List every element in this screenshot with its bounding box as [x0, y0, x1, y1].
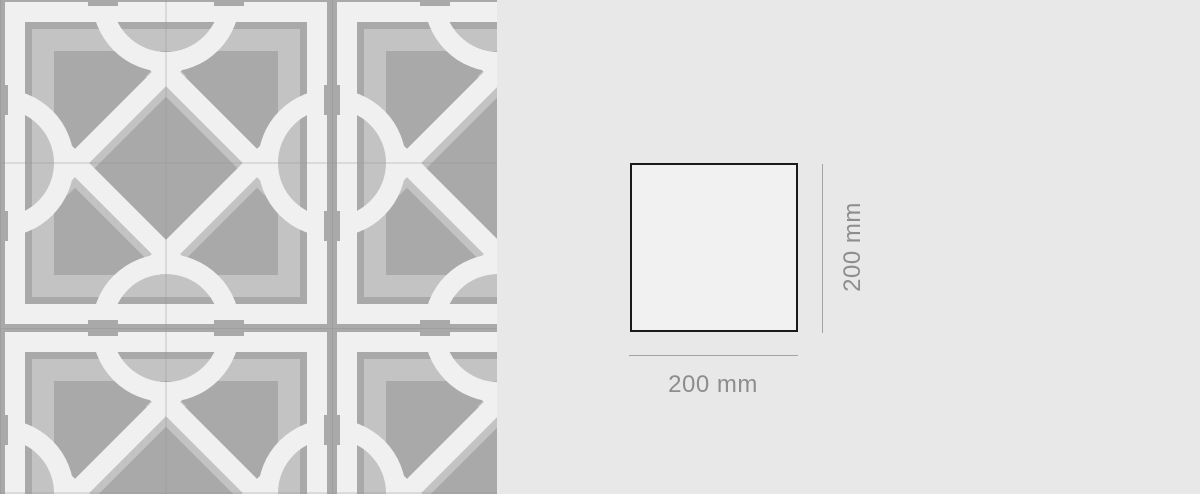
dimension-diagram: 200 mm 200 mm: [497, 0, 1200, 494]
tile-pattern-swatch: [0, 0, 497, 494]
tile-outline-square: [630, 163, 798, 332]
tile-pattern-image: [0, 0, 497, 494]
height-dimension-label: 200 mm: [840, 202, 866, 292]
width-dimension-label: 200 mm: [628, 372, 798, 398]
width-dimension-line: [629, 355, 798, 356]
height-dimension-line: [822, 164, 823, 333]
product-media-section: 200 mm 200 mm: [0, 0, 1200, 494]
